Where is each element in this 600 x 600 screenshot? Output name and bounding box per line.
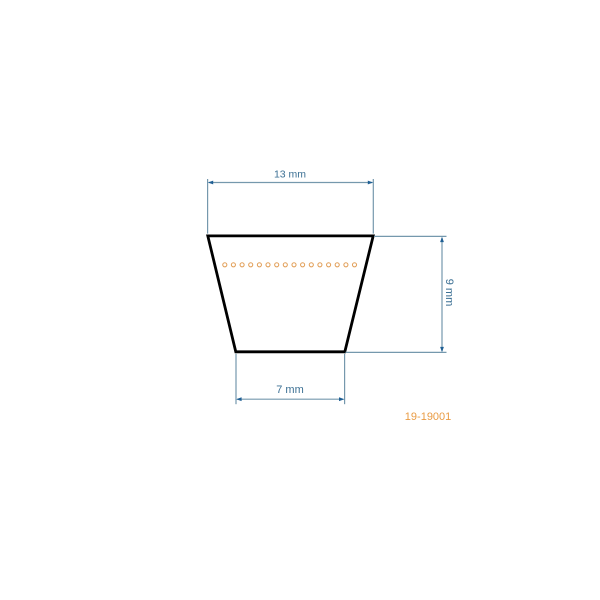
svg-text:9 mm: 9 mm [443, 279, 455, 307]
svg-text:13 mm: 13 mm [274, 168, 306, 180]
svg-text:19-19001: 19-19001 [405, 411, 452, 423]
svg-text:7 mm: 7 mm [276, 384, 304, 396]
